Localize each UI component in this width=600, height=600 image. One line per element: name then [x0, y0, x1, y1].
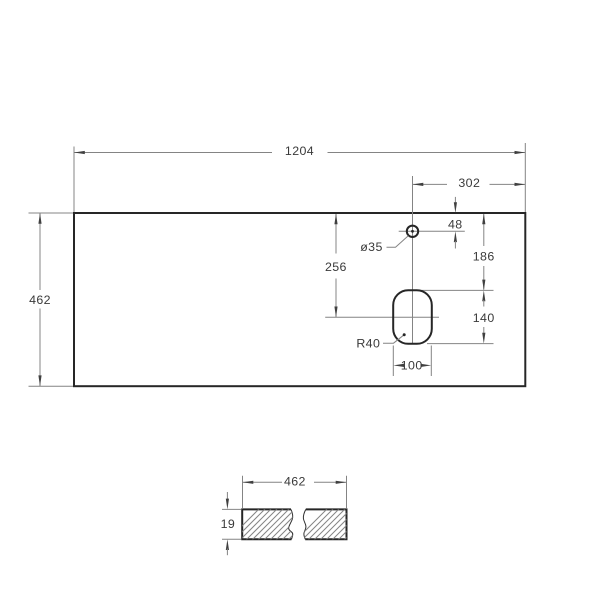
svg-text:100: 100: [401, 359, 423, 373]
svg-text:302: 302: [458, 176, 480, 190]
svg-text:R40: R40: [356, 336, 380, 350]
svg-text:186: 186: [473, 250, 495, 264]
svg-text:19: 19: [221, 517, 236, 531]
svg-text:462: 462: [29, 293, 51, 307]
svg-text:ø35: ø35: [360, 240, 383, 254]
svg-text:1204: 1204: [285, 144, 314, 158]
svg-text:256: 256: [325, 260, 347, 274]
svg-text:462: 462: [284, 475, 306, 489]
svg-text:140: 140: [473, 311, 495, 325]
svg-text:48: 48: [448, 217, 463, 231]
